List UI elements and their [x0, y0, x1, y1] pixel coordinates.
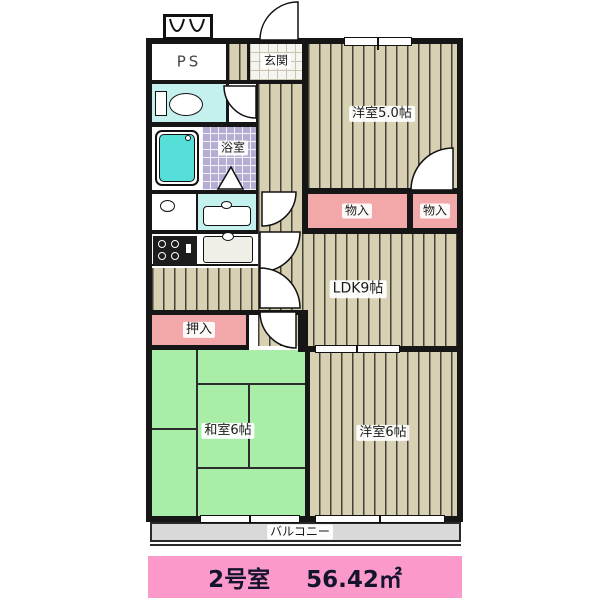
wall — [152, 190, 258, 194]
banner-area: 56.42㎡ — [306, 560, 402, 594]
wall — [152, 230, 258, 234]
tatami-line — [196, 383, 305, 385]
wall — [246, 315, 249, 345]
room-bathroom-label: 浴室 — [218, 141, 248, 156]
room-genkan-label: 玄関 — [261, 54, 291, 69]
wall — [226, 44, 229, 80]
wall — [302, 38, 308, 234]
bathtub-drain-icon — [185, 135, 191, 141]
washing-machine-icon — [160, 200, 175, 212]
tatami-line — [196, 350, 198, 516]
room-bathroom — [202, 127, 258, 190]
toilet-tank-icon — [155, 91, 167, 116]
hallway-floor — [258, 80, 302, 234]
wall — [247, 44, 250, 80]
wall — [152, 80, 308, 84]
door-arc-entrance — [260, 2, 298, 40]
banner-room-number: 2号室 — [208, 560, 270, 594]
wall — [407, 194, 413, 228]
balcony-label: バルコニー — [267, 525, 333, 540]
sliding-door-tick — [356, 345, 358, 353]
room-washitsu-label: 和室6帖 — [201, 423, 254, 439]
wall-outer-left — [146, 38, 152, 522]
stove-burner-icon — [158, 240, 166, 248]
room-ps-label: PS — [174, 53, 205, 72]
room-yoshitsu6-label: 洋室6帖 — [356, 425, 409, 441]
toilet-bowl-icon — [169, 93, 203, 116]
wall — [308, 188, 457, 194]
bathtub-inner — [159, 134, 195, 182]
stove-burner-icon — [171, 240, 179, 248]
wall-outer-right — [457, 38, 463, 522]
toilet-door-zone — [228, 84, 258, 122]
tatami-line — [152, 428, 196, 430]
meter-box-icon — [163, 14, 213, 40]
wall — [196, 194, 198, 230]
wall — [152, 122, 258, 127]
closet-oshiire-label: 押入 — [183, 322, 215, 338]
window-tick — [377, 37, 379, 50]
wall — [256, 84, 258, 230]
stove-burner-icon — [158, 252, 166, 260]
room-ldk-label: LDK9帖 — [330, 280, 387, 298]
sink-faucet-icon — [222, 232, 234, 241]
balcony-fence — [150, 544, 461, 546]
washbasin-icon — [203, 206, 251, 226]
window-tick — [379, 515, 381, 523]
stove-knob-icon — [186, 244, 191, 253]
washroom-left — [152, 194, 196, 230]
room-yoshitsu5-label: 洋室5.0帖 — [349, 106, 415, 122]
kitchen-floor — [152, 268, 258, 310]
stove-burner-icon — [171, 252, 179, 260]
closet-mono1-label: 物入 — [342, 204, 372, 219]
wall — [305, 346, 310, 516]
tatami-line — [196, 467, 305, 469]
closet-mono2-label: 物入 — [420, 204, 450, 219]
wall — [308, 228, 457, 234]
floorplan: PS 玄関 浴室 洋室5.0帖 物入 物入 LDK9帖 押入 和室6帖 洋室6帖… — [0, 0, 600, 600]
wall — [152, 345, 249, 350]
wall — [152, 310, 308, 315]
window-tick — [249, 515, 251, 523]
wall — [226, 84, 229, 122]
washbasin-faucet-icon — [221, 201, 232, 209]
room-banner: 2号室 56.42㎡ — [148, 556, 462, 598]
